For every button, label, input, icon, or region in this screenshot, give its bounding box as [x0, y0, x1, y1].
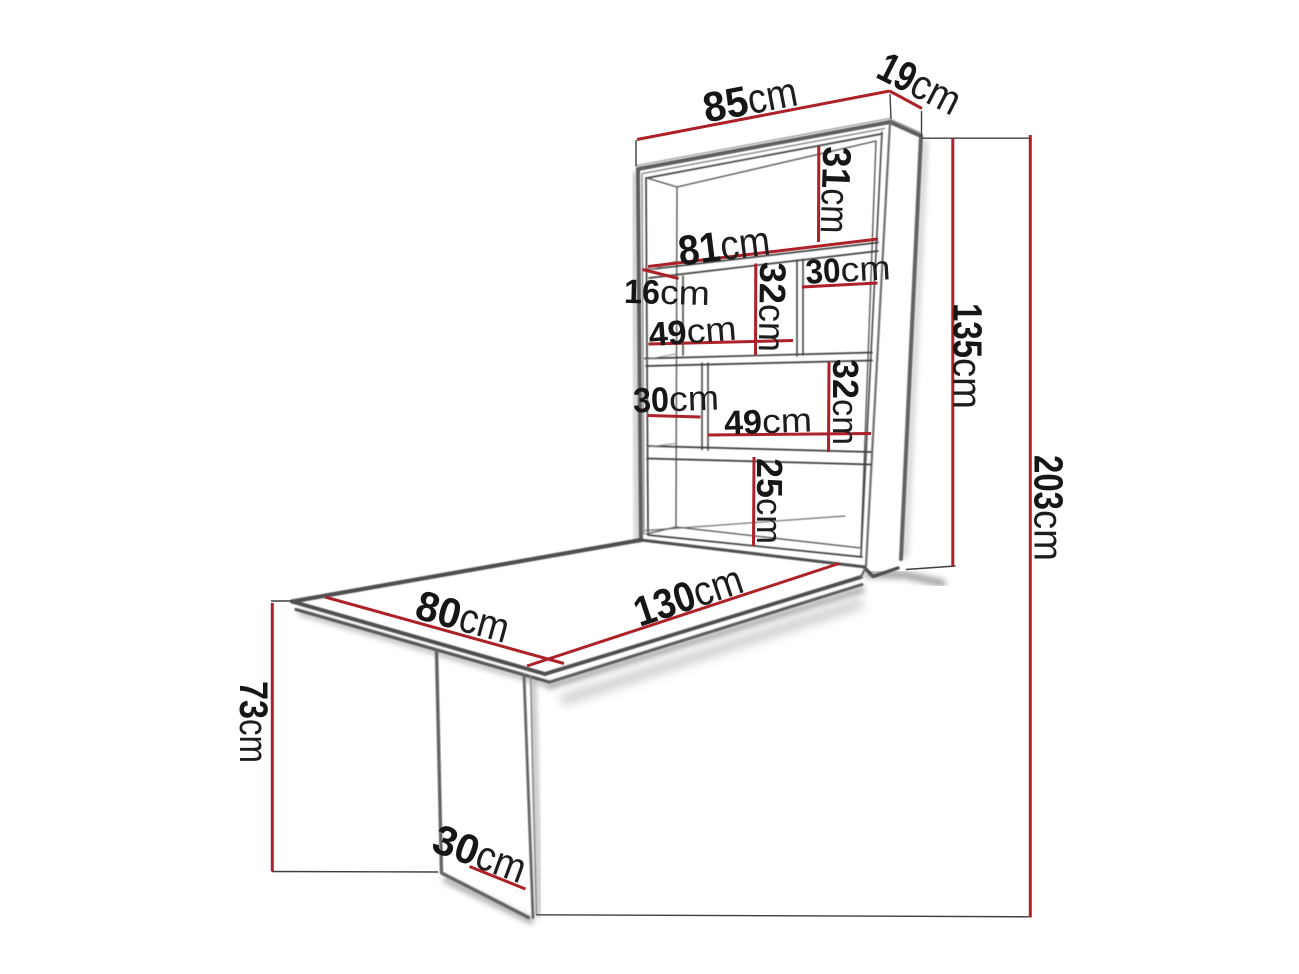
svg-text:30cm: 30cm: [632, 379, 719, 421]
svg-text:25cm: 25cm: [749, 458, 790, 544]
svg-text:73cm: 73cm: [231, 681, 275, 763]
svg-text:49cm: 49cm: [647, 310, 738, 355]
svg-text:49cm: 49cm: [723, 401, 812, 442]
svg-text:16cm: 16cm: [623, 273, 710, 313]
svg-text:32cm: 32cm: [751, 262, 794, 353]
svg-text:135cm: 135cm: [945, 303, 991, 409]
svg-text:31cm: 31cm: [811, 146, 858, 234]
svg-text:203cm: 203cm: [1026, 455, 1072, 561]
svg-text:32cm: 32cm: [825, 359, 866, 445]
svg-text:30cm: 30cm: [805, 249, 892, 291]
